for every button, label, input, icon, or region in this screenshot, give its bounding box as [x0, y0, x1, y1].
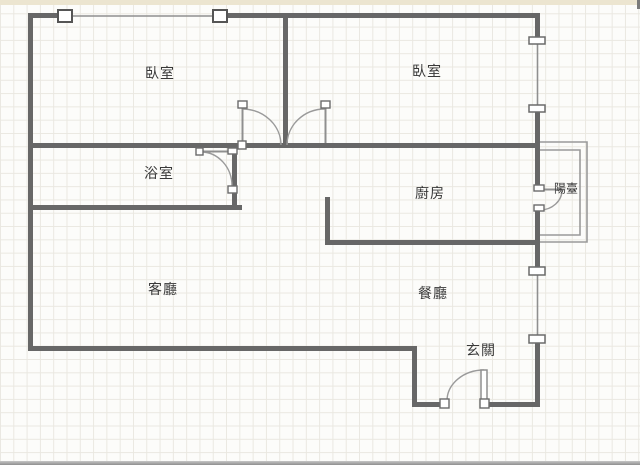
room-label-dining-room: 餐廳 — [418, 283, 448, 303]
wall-right-segment-3 — [535, 211, 540, 267]
room-label-entry: 玄關 — [466, 340, 496, 360]
window-jamb-right-upper-bottom — [529, 105, 545, 112]
floorplan-canvas: 臥室 臥室 浴室 廚房 客廳 餐廳 玄關 陽臺 — [0, 0, 640, 465]
wall-top-main-segment — [225, 13, 540, 18]
wall-right-segment-1 — [535, 13, 540, 38]
room-label-bathroom: 浴室 — [144, 163, 174, 183]
door-jamb-entry-right — [480, 399, 489, 408]
door-cap-bathroom — [196, 148, 203, 155]
door-arc-bedroom-left — [242, 109, 281, 145]
door-jamb-balcony-top — [534, 185, 544, 191]
door-jamb-entry-left — [440, 399, 449, 408]
wall-kitchen-left-stub — [325, 197, 330, 245]
door-leaf-entry — [481, 370, 487, 402]
room-label-living-room: 客廳 — [148, 279, 178, 299]
door-jamb-bathroom-top — [228, 148, 237, 154]
window-box-top-right — [213, 10, 227, 22]
door-jamb-bathroom-bottom — [228, 186, 237, 193]
wall-bathroom-bottom — [28, 205, 242, 210]
wall-bathroom-right — [232, 148, 237, 210]
floorplan-drawing — [0, 0, 640, 465]
door-arc-bathroom — [201, 152, 232, 186]
room-label-balcony: 陽臺 — [554, 180, 578, 197]
door-arc-bedroom-right — [287, 109, 325, 145]
door-jamb-balcony-bottom — [534, 205, 544, 211]
wall-kitchen-bottom — [325, 240, 540, 245]
door-cap-bedroom-left — [238, 101, 247, 108]
room-label-kitchen: 廚房 — [415, 183, 445, 203]
room-label-bedroom-left: 臥室 — [145, 63, 175, 83]
wall-right-segment-4 — [535, 343, 540, 407]
room-label-bedroom-right: 臥室 — [412, 61, 442, 81]
door-arc-entry — [447, 370, 484, 401]
window-jamb-right-lower-top — [529, 267, 545, 275]
door-cap-bedroom-right — [321, 101, 330, 108]
window-box-top-left — [58, 10, 72, 22]
wall-top-left-segment — [28, 13, 60, 18]
wall-living-bottom — [28, 346, 417, 351]
bottom-border-line — [0, 461, 640, 465]
window-jamb-right-lower-bottom — [529, 335, 545, 343]
wall-right-segment-2 — [535, 112, 540, 185]
window-jamb-right-upper-top — [529, 37, 545, 44]
wall-entry-bottom-right — [481, 402, 540, 407]
wall-bedroom-divider — [283, 15, 288, 148]
wall-entry-left — [412, 346, 417, 407]
door-jamb-bedroom-left — [238, 141, 246, 149]
wall-left-exterior — [28, 13, 33, 351]
